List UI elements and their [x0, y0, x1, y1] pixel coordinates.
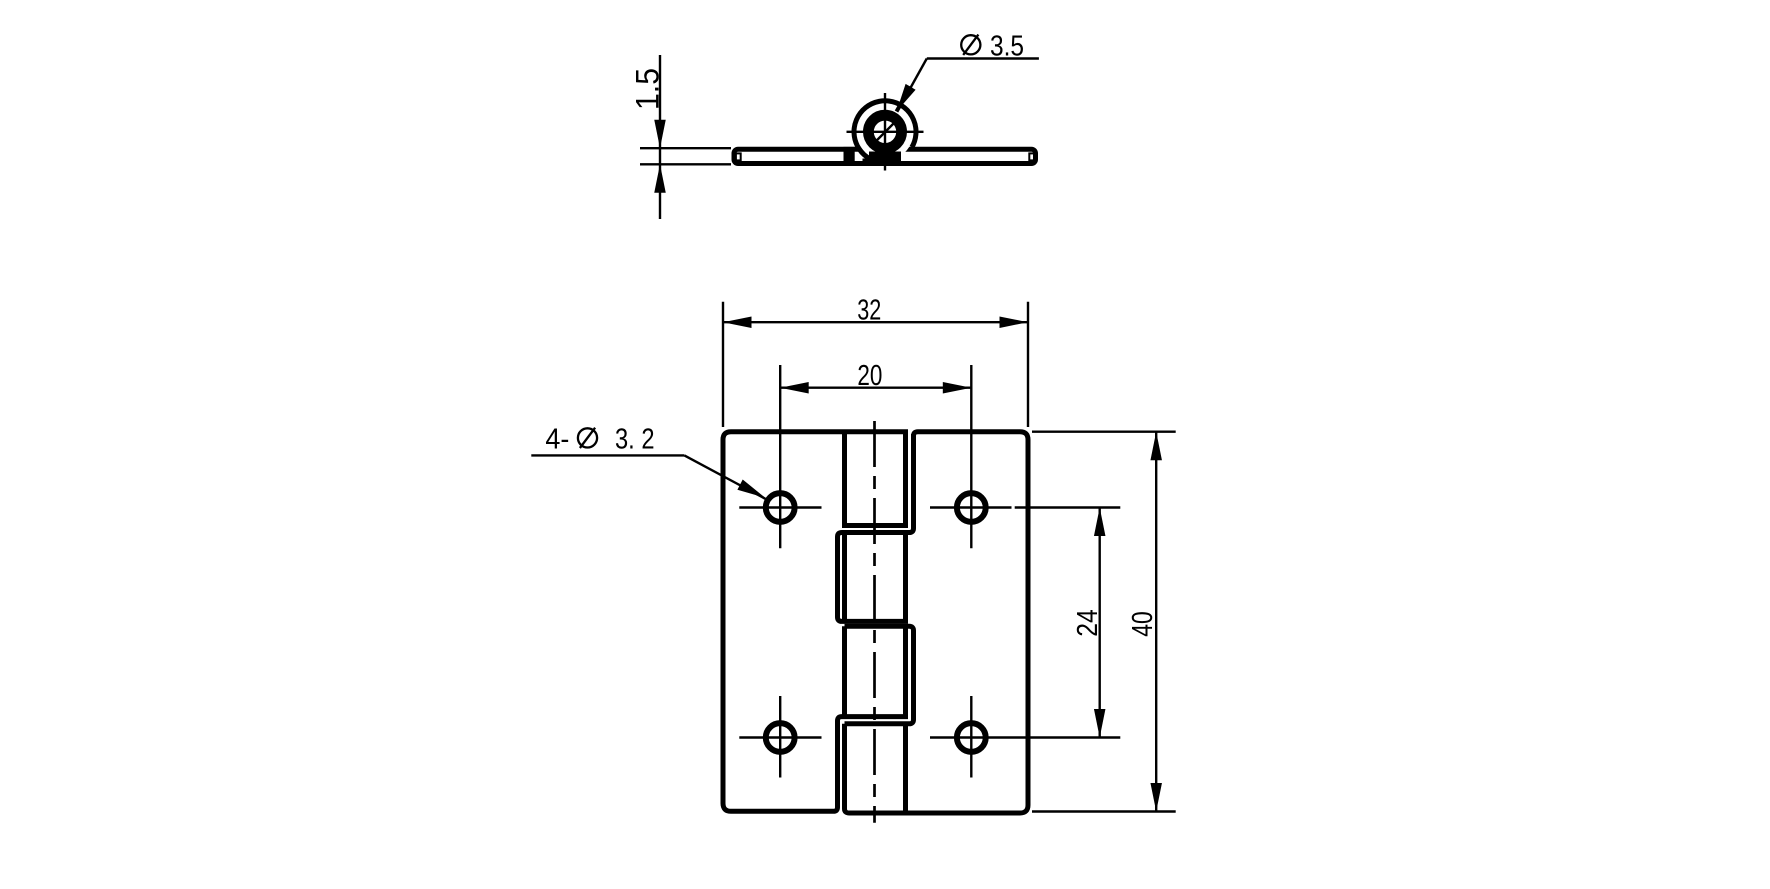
svg-text:20: 20	[857, 360, 882, 392]
svg-text:4-: 4-	[545, 424, 569, 456]
svg-text:40: 40	[1127, 611, 1159, 637]
svg-text:24: 24	[1072, 609, 1104, 637]
svg-text:3. 2: 3. 2	[615, 424, 655, 456]
svg-text:32: 32	[857, 294, 881, 326]
svg-text:1.5: 1.5	[630, 68, 666, 110]
svg-text:3.5: 3.5	[990, 31, 1024, 63]
